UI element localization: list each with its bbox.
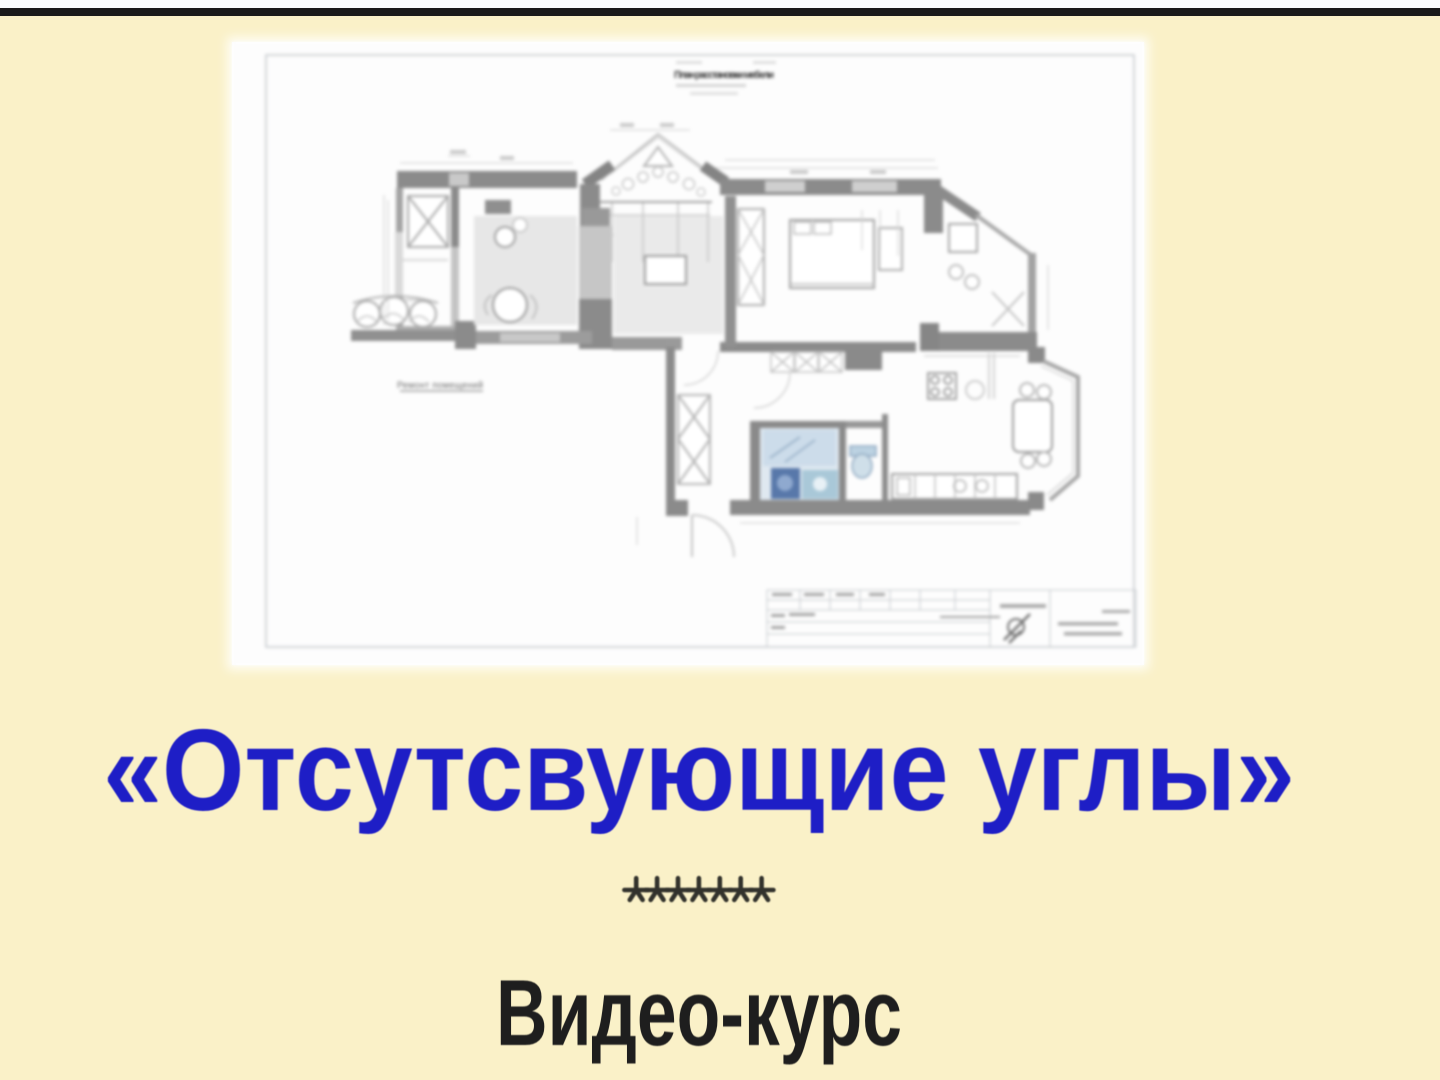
svg-text:Ремонт помещений: Ремонт помещений [397,380,483,390]
svg-text:План расстановки мебели: План расстановки мебели [674,69,774,81]
